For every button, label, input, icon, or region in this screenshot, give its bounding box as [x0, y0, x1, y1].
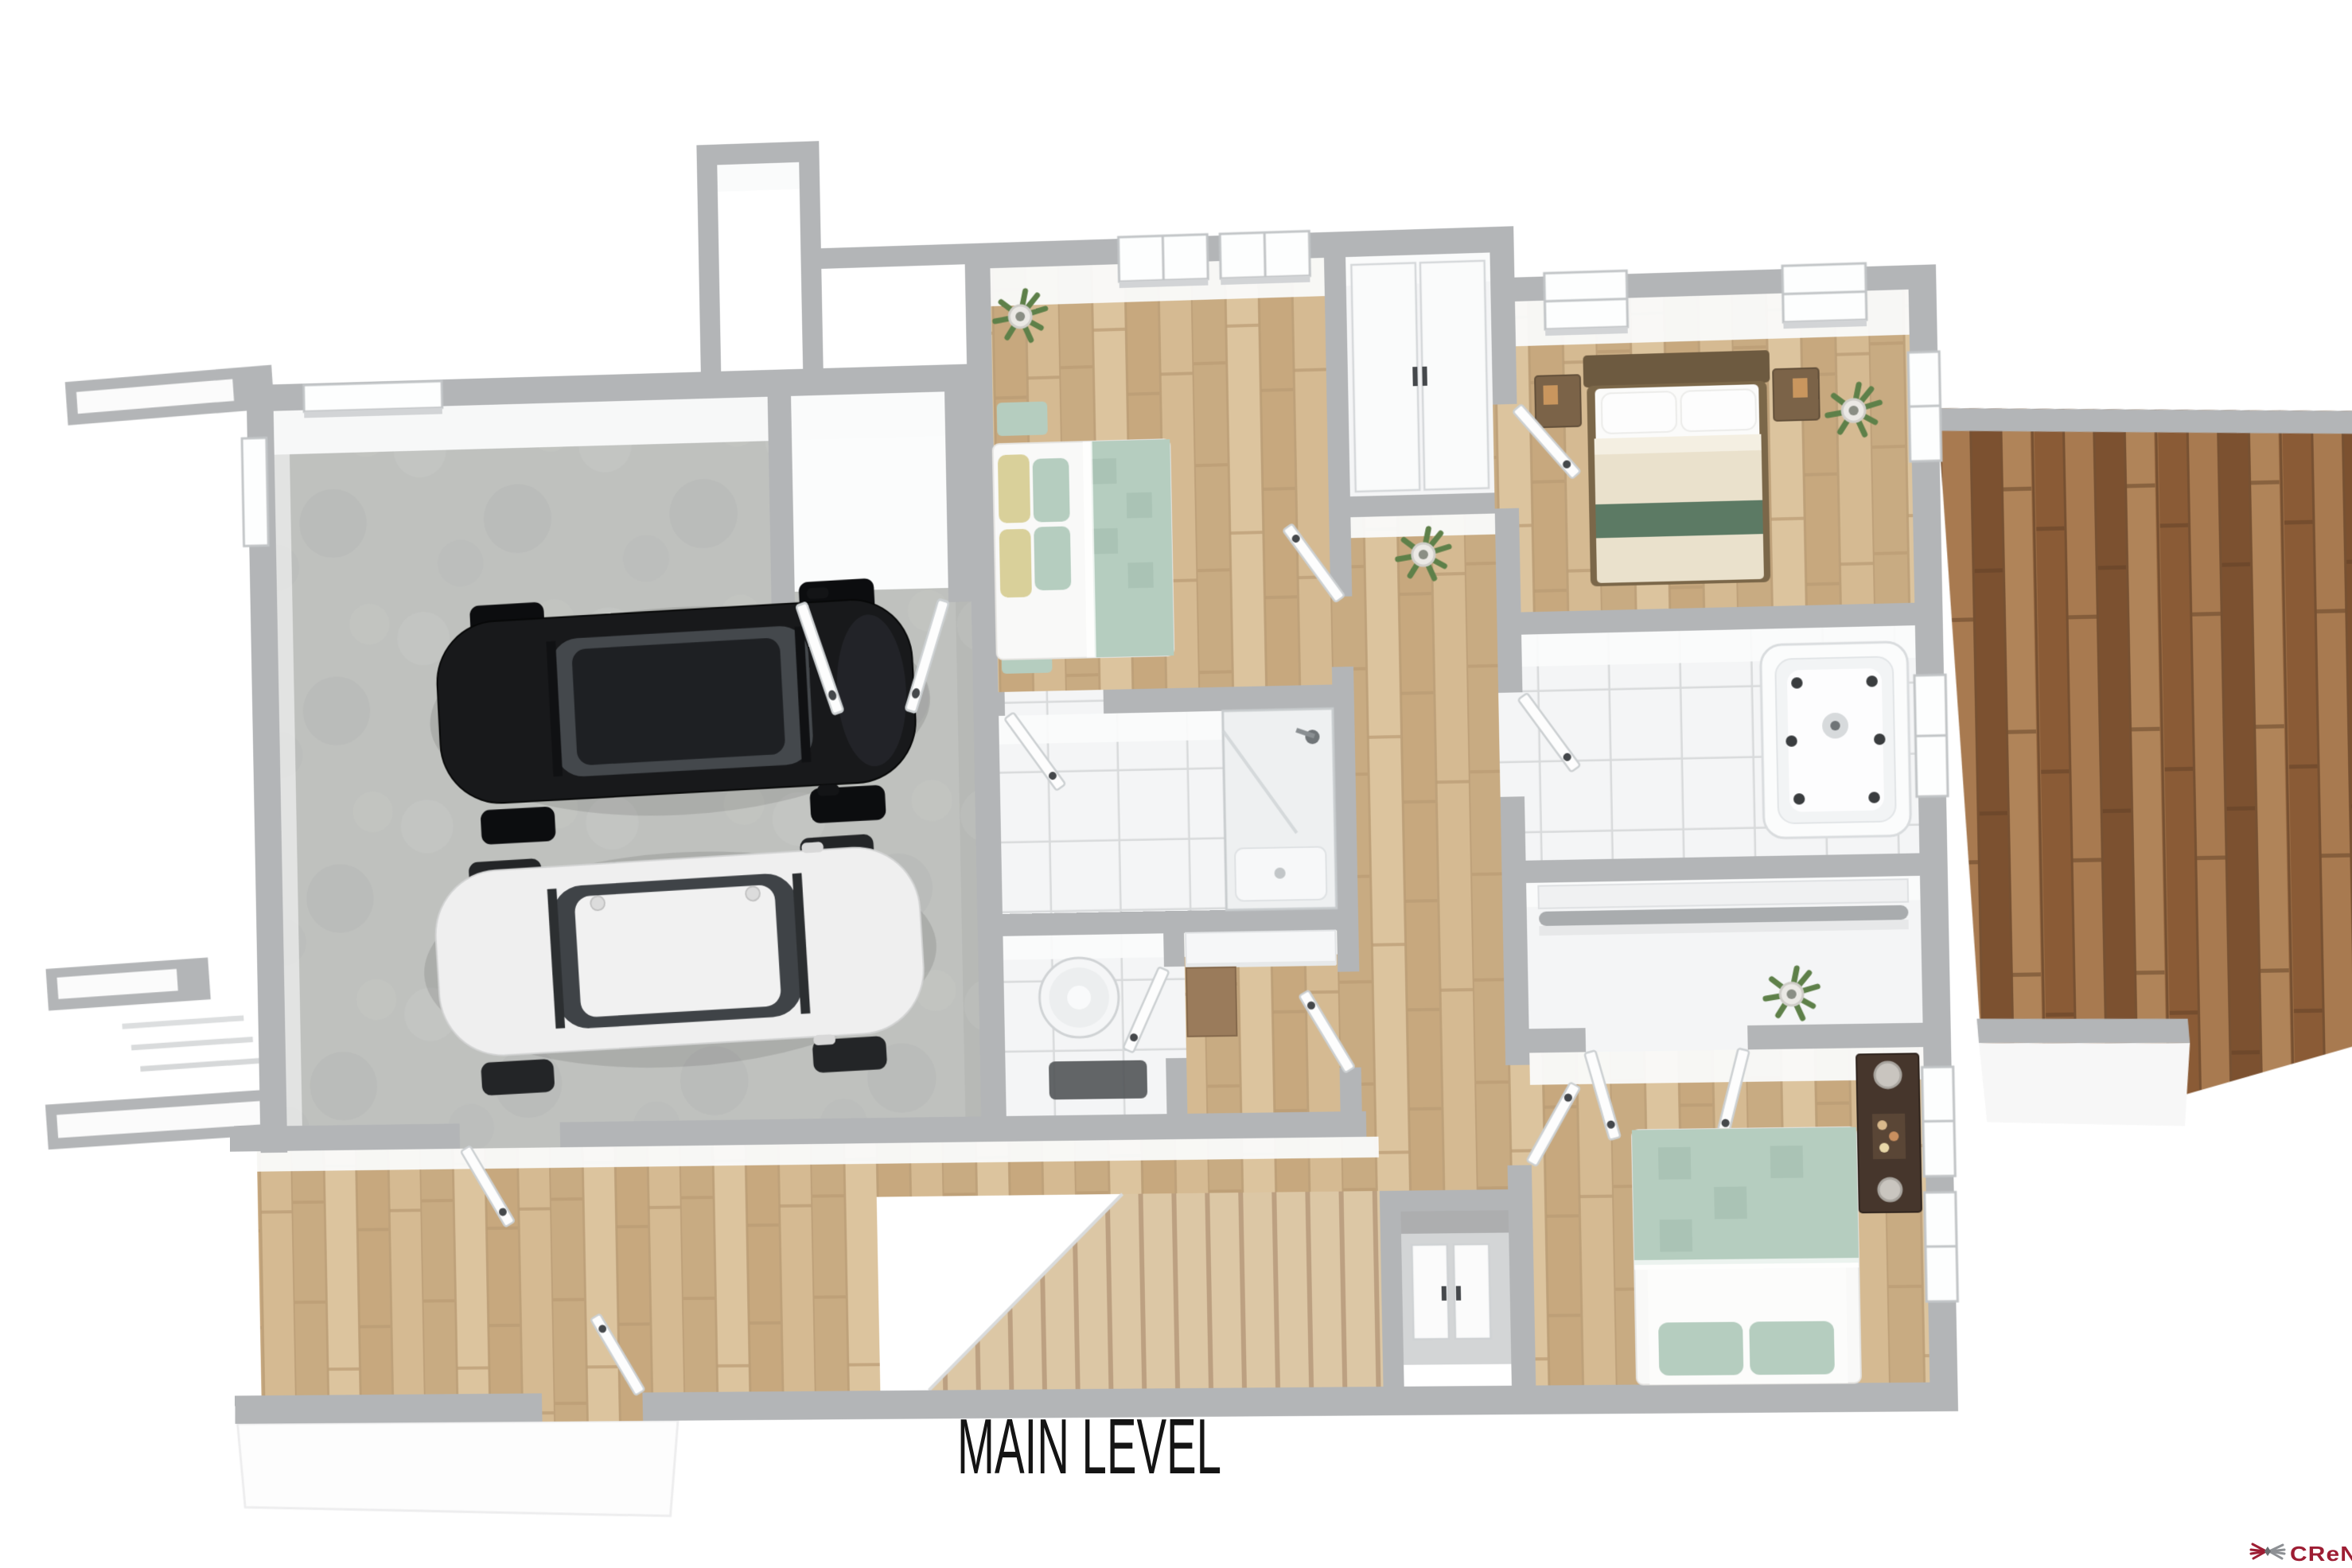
level-title: MAIN LEVEL [957, 1403, 1221, 1490]
overlay-layer: MAIN LEVEL CReN [0, 0, 2352, 1568]
floor-plan-page: MAIN LEVEL CReN [0, 0, 2352, 1568]
cren-logo-text: CReN [2290, 1542, 2352, 1566]
cren-logo-icon [2251, 1544, 2284, 1558]
cren-logo: CReN [2251, 1542, 2352, 1566]
